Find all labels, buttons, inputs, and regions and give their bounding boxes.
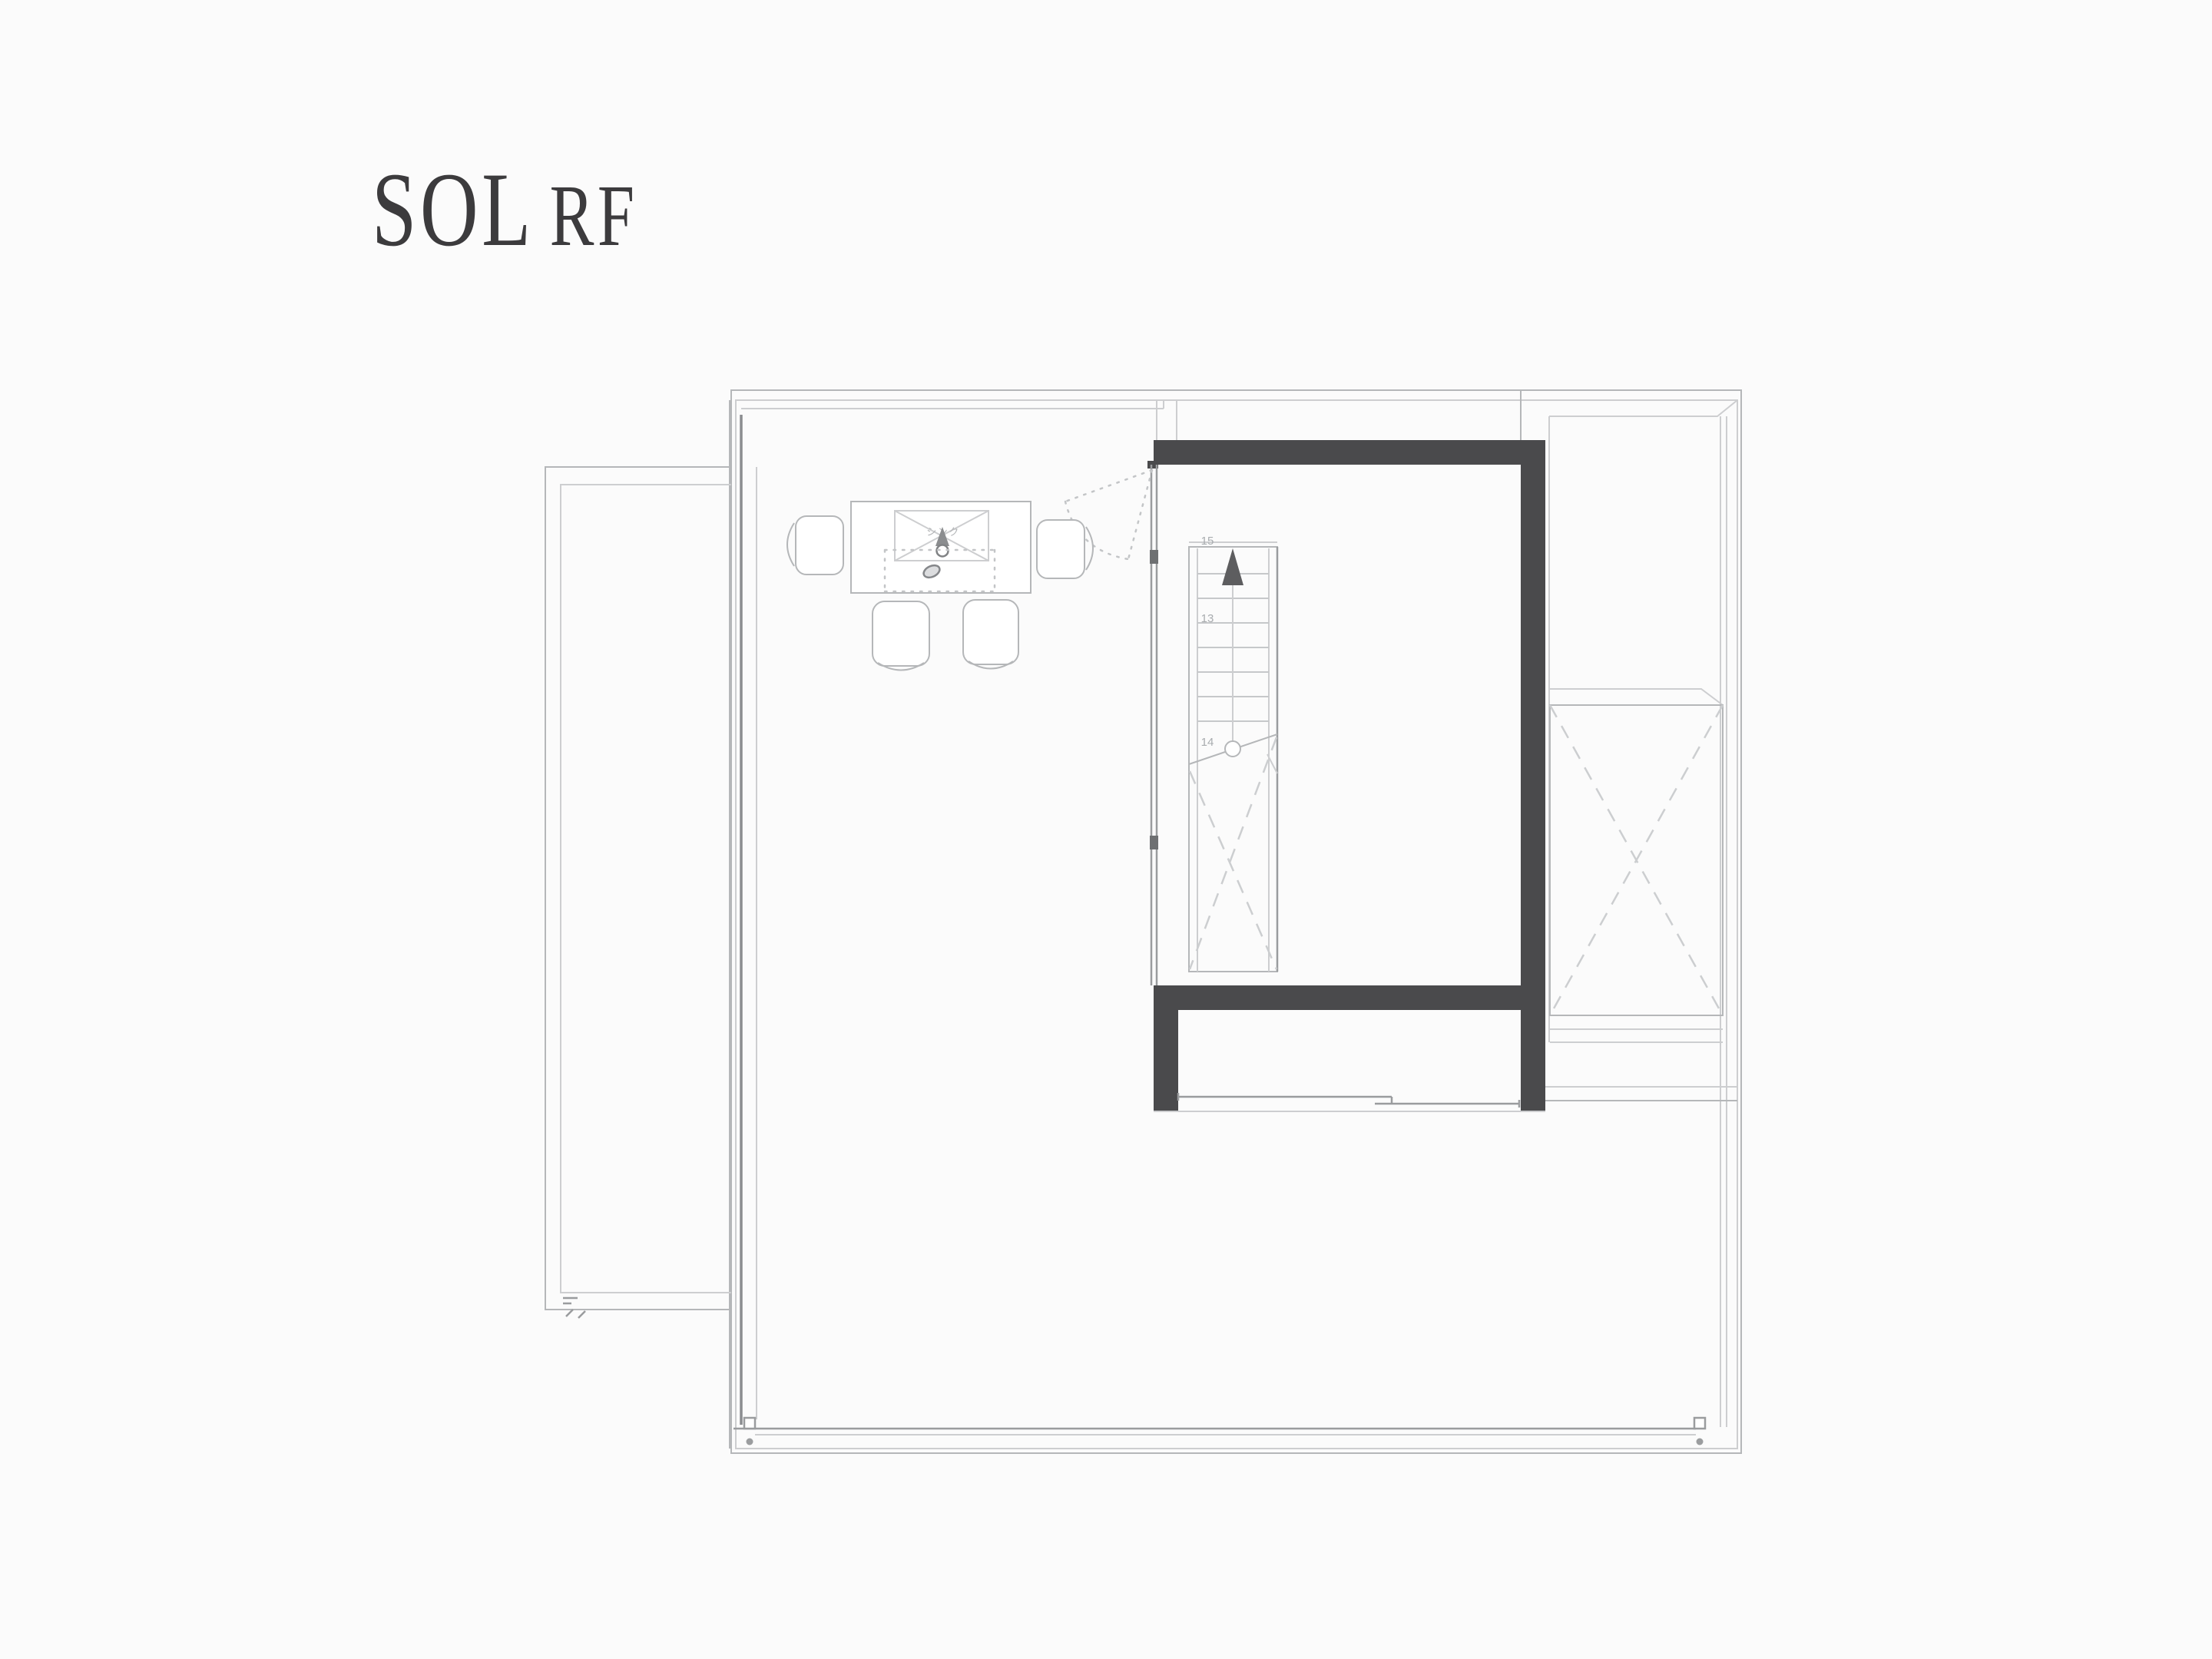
floor-plan-sheet: { "title": { "project": "SOL", "floor": … [0,0,2212,1659]
stair-step-number-mid: 13 [1201,612,1214,625]
stair-up-arrow-icon [1222,548,1243,585]
stair-step-number-bottom: 14 [1201,736,1214,749]
dining-set: シンク [787,502,1093,671]
wall-end-cap-right [1694,1418,1705,1429]
right-roof-fold-line [1550,689,1723,705]
right-roof-section [1545,416,1737,1101]
chair-left [787,516,843,575]
chair-bottom-left-seat [873,601,929,666]
penthouse-wall-mid [1154,985,1521,1010]
chair-right-back [1086,527,1093,570]
stair-landing-node [1225,741,1240,757]
terrace-hatch-marks [566,1310,585,1318]
sliding-door [1154,1093,1545,1111]
roof-drain-right [1697,1439,1704,1445]
right-section-lower-lines [1550,1029,1723,1042]
wall-end-cap-left [744,1418,755,1429]
stair-step-number-top: 15 [1201,535,1214,548]
sliding-door-panels [1178,1097,1519,1104]
penthouse-wall-right [1521,440,1545,1111]
chair-bottom-right-seat [963,600,1018,664]
chair-bottom-right [963,600,1018,669]
roof-joint-lines-left [1157,400,1177,440]
glazing-lines [1151,465,1157,985]
glazing-mullion-2 [1150,836,1158,849]
glazing-mullion-1 [1150,550,1158,564]
chair-right [1037,520,1093,578]
penthouse-wall-top [1154,440,1545,465]
stair-void-x-brace [1190,737,1277,969]
chair-left-seat [796,516,843,575]
terrace-outer-edge [545,467,731,1310]
chair-left-back [787,523,794,566]
terrace-level-marks [563,1298,578,1303]
penthouse-glazing [1150,465,1158,985]
roof-drain-left [747,1439,753,1445]
parapet-top-inner-line-right [1549,400,1737,416]
left-terrace [545,467,731,1318]
sliding-door-stops [1178,1093,1519,1108]
penthouse-wall-lower-left [1154,985,1178,1111]
chair-bottom-left [873,601,929,671]
right-skylight-x-brace [1550,705,1723,1015]
drawing-sheet: SOLRF [0,0,2212,1659]
floor-plan-canvas: 15 13 14 [0,0,2212,1659]
parapet-top-inner-line [741,401,1164,409]
staircase: 15 13 14 [1189,535,1277,972]
terrace-inner-edge [561,485,731,1293]
chair-right-seat [1037,520,1084,578]
